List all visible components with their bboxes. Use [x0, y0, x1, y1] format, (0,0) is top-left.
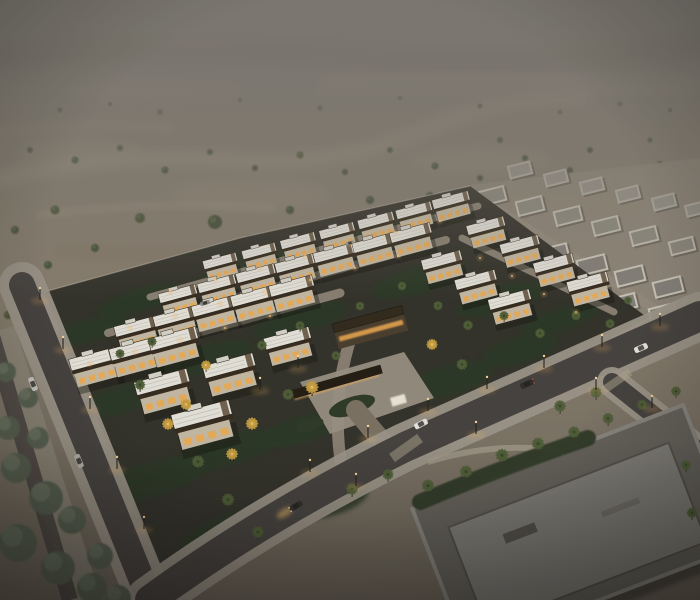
color-grade: [0, 0, 700, 600]
aerial-render-image: [0, 0, 700, 600]
render-root: [0, 0, 700, 600]
scene: [0, 0, 700, 600]
atmosphere-layer: [0, 0, 700, 600]
